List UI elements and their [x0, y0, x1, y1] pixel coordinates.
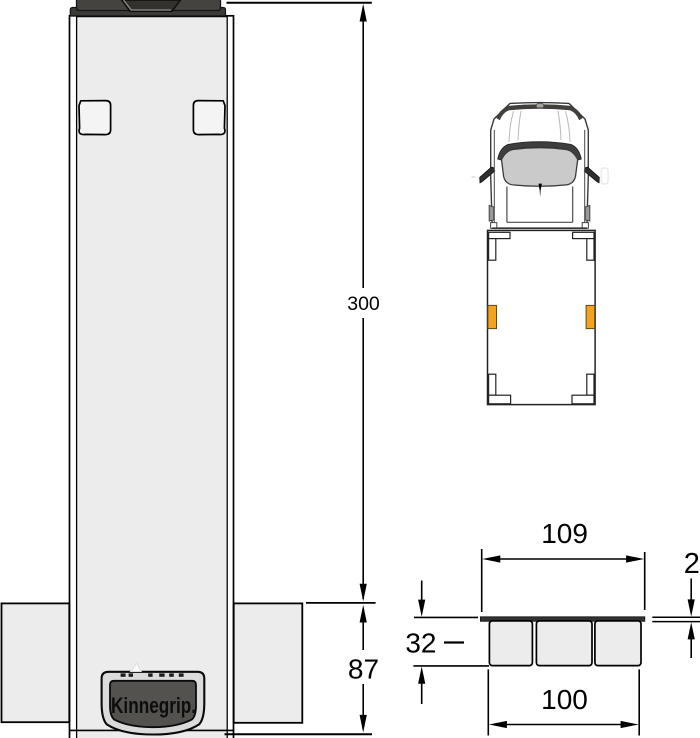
svg-text:100: 100: [541, 684, 588, 715]
svg-text:32: 32: [405, 628, 436, 659]
svg-text:Kinnegrip.: Kinnegrip.: [111, 693, 196, 718]
svg-text:109: 109: [541, 518, 588, 549]
svg-text:2: 2: [684, 548, 700, 580]
svg-text:87: 87: [348, 654, 379, 685]
svg-text:300: 300: [347, 293, 380, 315]
